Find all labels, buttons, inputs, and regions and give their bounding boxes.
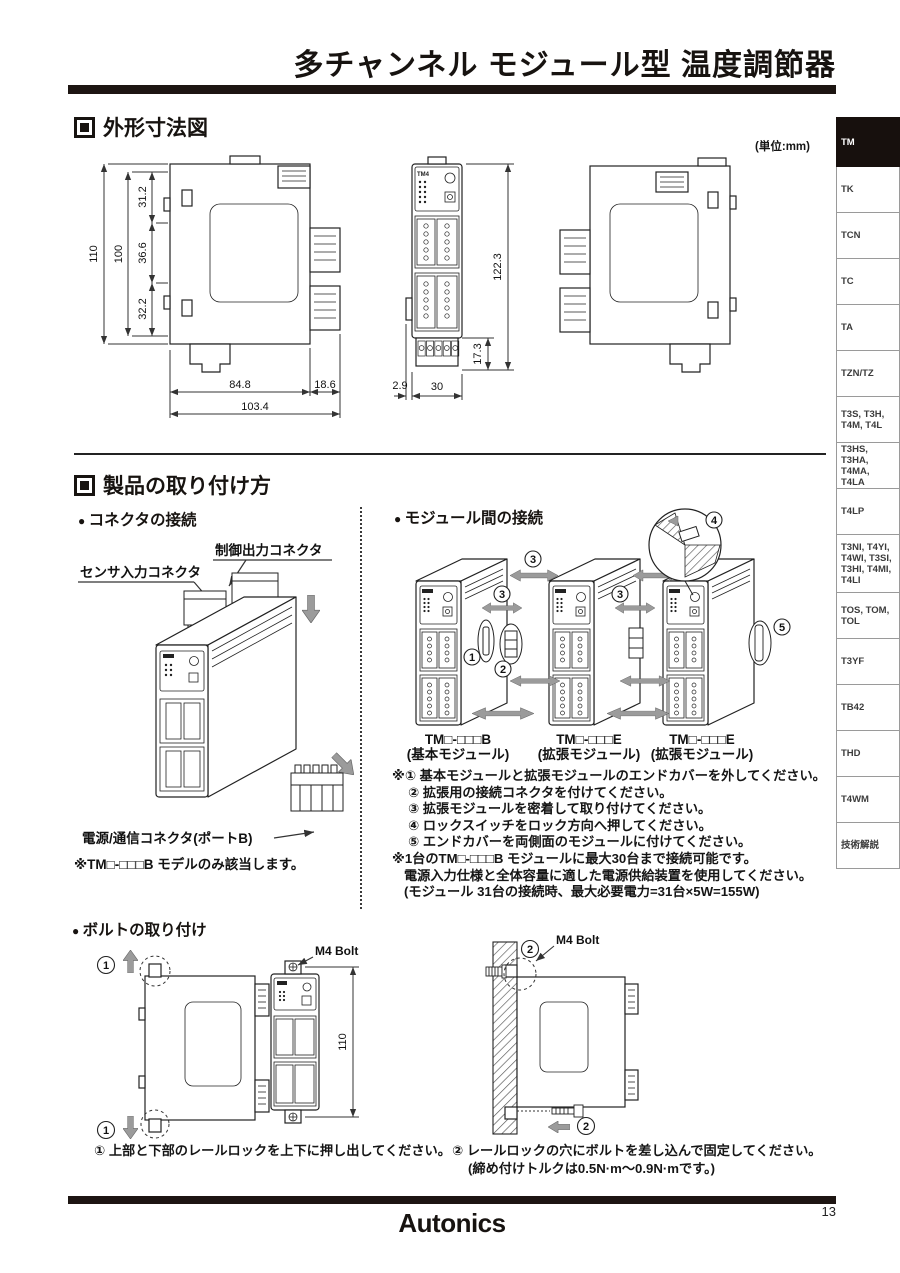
step-line: ④ ロックスイッチをロック方向へ押してください。 [392,818,826,835]
index-tab-technical-notes: 技術解説 [836,823,900,869]
index-tab-t3hs-group: T3HS, T3HA, T4MA, T4LA [836,443,900,489]
index-tab-tcn: TCN [836,213,900,259]
step-line: (モジュール 31台の接続時、最大必要電力=31台×5W=155W) [392,884,826,901]
index-tab-label: TM [841,137,855,148]
callout-1: 1 [469,652,475,664]
control-output-connector-label: 制御出力コネクタ [215,542,322,558]
index-tab-tzn-tz: TZN/TZ [836,351,900,397]
index-tab-label: TA [841,322,853,333]
push-up-arrow-icon [123,950,138,973]
connect-arrow-icon [472,708,534,719]
footer-rule [68,1196,836,1204]
expansion-module-drawing [549,559,640,725]
m4-bolt-label: M4 Bolt [556,933,599,947]
connect-arrow-icon [510,676,560,687]
m4-bolt-label: M4 Bolt [315,944,358,958]
expansion-module-drawing [663,559,754,725]
module2-type: (拡張モジュール) [538,746,641,762]
callout-4: 4 [711,515,718,527]
connect-arrow-icon [620,676,670,687]
index-tab-label: TB42 [841,702,864,713]
step-line: ⑤ エンドカバーを両側面のモジュールに付けてください。 [392,834,826,851]
dim-36-6: 36.6 [137,242,149,263]
section-heading-mounting: 製品の取り付け方 [74,470,271,500]
callout-5: 5 [779,622,785,634]
index-tab-label: T4LP [841,506,864,517]
callout-3: 3 [617,589,623,601]
page-number: 13 [790,1204,836,1219]
step-line: ③ 拡張モジュールを密着して取り付けてください。 [392,801,826,818]
step-line: ※1台のTM□-□□□B モジュールに最大30台まで接続可能です。 [392,851,826,868]
figure-module-connection: 3 3 3 1 2 4 5 TM□-□□□B (基本モジュール) TM□-□□□… [392,503,835,765]
bolt-caption-1: ① 上部と下部のレールロックを上下に押し出してください。 [94,1140,451,1159]
figure-bolt-left: 1 1 M4 Bolt 11 [83,938,435,1144]
callout-3: 3 [499,589,505,601]
step-line: 電源入力仕様と全体容量に適した電源供給装置を使用してください。 [392,868,826,885]
index-tab-label: TK [841,184,854,195]
index-tab-label: TCN [841,230,861,241]
callout-2: 2 [500,664,506,676]
callout-1: 1 [103,1125,109,1137]
dim-30: 30 [431,381,443,393]
page-title: 多チャンネル モジュール型 温度調節器 [200,40,836,84]
index-tab-label: T3YF [841,656,864,667]
catalog-page: 多チャンネル モジュール型 温度調節器 TM TK TCN TC TA TZN/… [0,0,900,1273]
section-divider [74,453,826,455]
dim-2-9: 2.9 [392,380,407,392]
index-tab-ta: TA [836,305,900,351]
index-tab-label: T3NI, T4YI, T4WI, T3SI, T3HI, T4MI, T4LI [841,542,895,586]
index-tab-label: TOS, TOM, TOL [841,605,895,627]
header-rule [68,85,836,94]
figure-front-view-dimensions: TM4 122.3 17.3 2.9 [392,148,542,406]
down-arrow-icon [302,595,320,623]
index-tab-tb42: TB42 [836,685,900,731]
module3-type: (拡張モジュール) [651,746,754,762]
subheading-connector: コネクタの接続 [78,508,196,530]
connector-note: ※TM□-□□□B モデルのみ該当します。 [74,856,304,872]
dim-122-3: 122.3 [492,253,504,281]
sensor-input-connector-label: センサ入力コネクタ [80,564,201,580]
index-tab-t3yf: T3YF [836,639,900,685]
step-line: ※① 基本モジュールと拡張モジュールのエンドカバーを外してください。 [392,768,826,785]
brand-logo: Autonics [352,1208,552,1239]
power-comm-connector-label: 電源/通信コネクタ(ポートB) [82,830,252,846]
index-tab-tm: TM [836,117,900,167]
dim-32-2: 32.2 [137,298,149,319]
section-heading-dimensions: 外形寸法図 [74,112,208,142]
callout-3: 3 [530,554,536,566]
connect-arrow-icon [510,570,558,581]
index-tab-label: TC [841,276,854,287]
module-front-label: TM4 [417,172,430,178]
dim-110: 110 [88,245,100,263]
dim-17-3: 17.3 [472,343,484,364]
dim-18-6: 18.6 [314,379,335,391]
index-tab-label: TZN/TZ [841,368,874,379]
callout-2: 2 [583,1121,589,1133]
section-heading-text: 外形寸法図 [103,112,208,142]
callout-2: 2 [527,944,533,956]
index-tab-t4wm: T4WM [836,777,900,823]
index-tab-label: T3S, T3H, T4M, T4L [841,409,895,431]
connection-steps: ※① 基本モジュールと拡張モジュールのエンドカバーを外してください。 ② 拡張用… [392,768,826,901]
figure-side-view-right [552,152,767,387]
insert-arrow-icon [548,1121,570,1133]
subheading-bolt: ボルトの取り付け [72,918,207,940]
figure-side-view-dimensions: 110 100 31.2 36.6 32.2 84.8 18.6 103.4 [82,152,374,430]
module3-name: TM□-□□□E [669,732,735,747]
bolt-caption-2: ② レールロックの穴にボルトを差し込んで固定してください。 [452,1140,821,1159]
square-bullet-icon [74,117,95,138]
index-tab-label: THD [841,748,861,759]
index-tab-t3s-group: T3S, T3H, T4M, T4L [836,397,900,443]
dim-100: 100 [113,245,125,263]
dim-bolt-110: 110 [337,1033,349,1051]
bolt-caption-torque: (締め付けトルクは0.5N·m〜0.9N·mです。) [468,1158,715,1177]
step-line: ② 拡張用の接続コネクタを付けてください。 [392,785,826,802]
index-tab-label: 技術解説 [841,840,879,851]
section-heading-text: 製品の取り付け方 [103,470,271,500]
module1-type: (基本モジュール) [407,746,510,762]
module1-name: TM□-□□□B [425,732,492,747]
index-tab-sidebar: TM TK TCN TC TA TZN/TZ T3S, T3H, T4M, T4… [836,117,900,869]
dim-103-4: 103.4 [241,401,269,413]
connect-arrow-icon [607,708,669,719]
index-tab-label: T3HS, T3HA, T4MA, T4LA [841,444,895,488]
dim-84-8: 84.8 [229,379,250,391]
square-bullet-icon [74,475,95,496]
index-tab-t3ni-group: T3NI, T4YI, T4WI, T3SI, T3HI, T4MI, T4LI [836,535,900,593]
index-tab-thd: THD [836,731,900,777]
push-down-arrow-icon [123,1116,138,1139]
dim-31-2: 31.2 [137,186,149,207]
figure-bolt-right: 2 M4 Bolt 2 [478,928,823,1138]
figure-connector-connection: 制御出力コネクタ センサ入力コネクタ [66,533,366,911]
index-tab-tc: TC [836,259,900,305]
index-tab-label: T4WM [841,794,869,805]
index-tab-t4lp: T4LP [836,489,900,535]
module2-name: TM□-□□□E [556,732,622,747]
callout-1: 1 [103,960,109,972]
index-tab-tk: TK [836,167,900,213]
index-tab-tos-group: TOS, TOM, TOL [836,593,900,639]
